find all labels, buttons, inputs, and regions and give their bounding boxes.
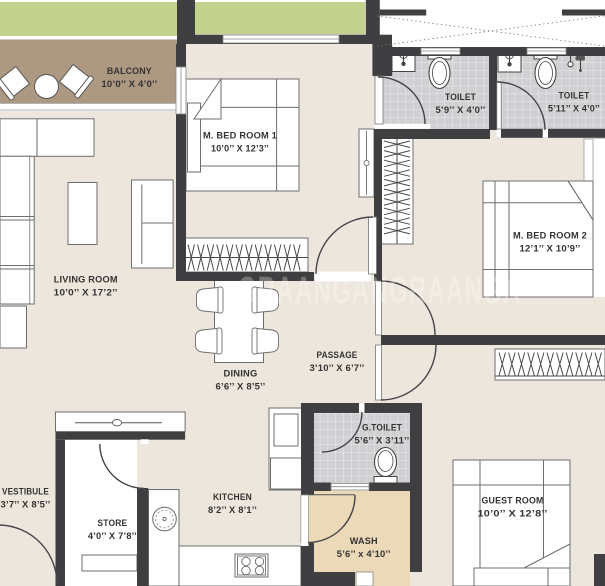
svg-text:M. BED ROOM 2: M. BED ROOM 2 bbox=[513, 231, 587, 242]
svg-text:PASSAGE: PASSAGE bbox=[317, 350, 358, 361]
svg-text:3’10’’ X 6’7’’: 3’10’’ X 6’7’’ bbox=[310, 363, 365, 373]
svg-text:5’9’’ X 4’0’’: 5’9’’ X 4’0’’ bbox=[436, 105, 486, 115]
svg-text:VESTIBULE: VESTIBULE bbox=[2, 487, 49, 498]
svg-text:G.TOILET: G.TOILET bbox=[362, 423, 402, 434]
svg-text:3’7’’ X 8’5’’: 3’7’’ X 8’5’’ bbox=[1, 500, 51, 510]
svg-text:10’0’’ X 12’3’’: 10’0’’ X 12’3’’ bbox=[211, 144, 269, 154]
svg-text:KITCHEN: KITCHEN bbox=[213, 492, 252, 503]
svg-text:GRAANGANGRAANGA: GRAANGANGRAANGA bbox=[238, 268, 522, 311]
svg-text:GUEST ROOM: GUEST ROOM bbox=[482, 496, 544, 507]
svg-text:10’0’’ X 17’2’’: 10’0’’ X 17’2’’ bbox=[54, 288, 118, 298]
svg-text:LIVING ROOM: LIVING ROOM bbox=[54, 275, 118, 286]
svg-text:DINING: DINING bbox=[224, 369, 258, 380]
svg-text:TOILET: TOILET bbox=[445, 92, 476, 103]
svg-text:10’0’’ X 4’0’’: 10’0’’ X 4’0’’ bbox=[101, 79, 157, 89]
svg-text:5’6’’ X 3’11’’: 5’6’’ X 3’11’’ bbox=[355, 436, 410, 446]
svg-text:WASH: WASH bbox=[350, 536, 378, 547]
svg-text:5’6’’ x 4’10’’: 5’6’’ x 4’10’’ bbox=[337, 549, 391, 559]
svg-text:12’1’’ X 10’9’’: 12’1’’ X 10’9’’ bbox=[520, 244, 581, 254]
svg-text:10’0’’ X 12’8’’: 10’0’’ X 12’8’’ bbox=[478, 509, 548, 519]
svg-text:STORE: STORE bbox=[97, 518, 127, 529]
svg-text:BALCONY: BALCONY bbox=[107, 66, 152, 77]
svg-text:5’11’’ X 4’0’’: 5’11’’ X 4’0’’ bbox=[548, 103, 600, 113]
svg-text:8’2’’ X 8’1’’: 8’2’’ X 8’1’’ bbox=[208, 505, 257, 515]
svg-text:4’0’’ X 7’8’’: 4’0’’ X 7’8’’ bbox=[88, 531, 137, 541]
svg-text:TOILET: TOILET bbox=[559, 90, 590, 101]
svg-text:M. BED ROOM 1: M. BED ROOM 1 bbox=[203, 131, 277, 142]
svg-text:6’6’’ X 8’5’’: 6’6’’ X 8’5’’ bbox=[216, 382, 266, 392]
